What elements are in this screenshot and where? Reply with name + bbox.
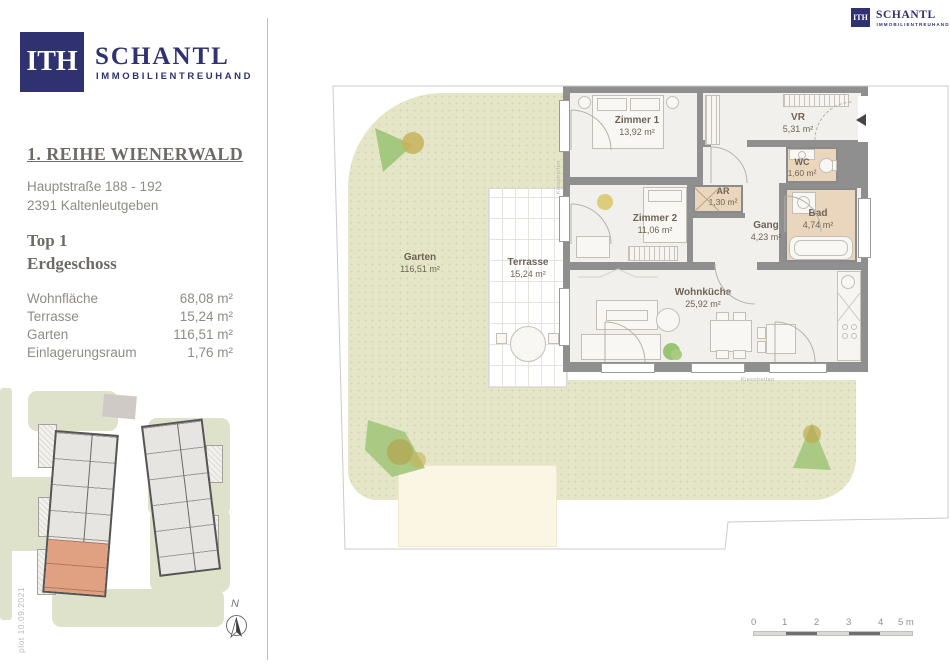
scale-segment: [849, 632, 881, 635]
sideboard-inner: [606, 310, 648, 321]
storage-building-footprint: [398, 465, 557, 547]
label-garten: Garten 116,51 m²: [400, 252, 440, 275]
armchair: [656, 308, 680, 332]
room-name: Bad: [803, 208, 834, 220]
project-title: 1. REIHE WIENERWALD: [27, 144, 243, 165]
area-value: 116,51 m²: [173, 326, 233, 344]
compass-icon: [226, 615, 247, 636]
scale-end-label: 5 m: [898, 617, 914, 628]
scale-tick: 1: [782, 617, 787, 628]
gravel-strip-note: Kiesstreifen: [741, 377, 775, 383]
room-label-zimmer2: Zimmer 2 11,06 m²: [633, 213, 677, 236]
scale-bar: 0 1 2 3 4 5 m: [751, 617, 923, 639]
area-value: 68,08 m²: [180, 290, 233, 308]
nightstand: [666, 96, 679, 109]
scale-segment: [817, 632, 849, 635]
room-name: Terrasse: [508, 257, 549, 269]
scale-bar-segments: [753, 631, 913, 636]
chair: [733, 312, 746, 321]
duct-block: [838, 147, 861, 185]
panel-divider: [267, 18, 268, 660]
chair: [733, 350, 746, 359]
ith-logo-small-icon: ITH: [851, 8, 870, 27]
stove-burner: [851, 333, 857, 339]
label-terrasse: Terrasse 15,24 m²: [508, 257, 549, 280]
room-area: 13,92 m²: [615, 127, 659, 138]
terrace-door: [769, 363, 827, 373]
terrace-chair: [496, 333, 507, 344]
area-row: Garten 116,51 m²: [27, 326, 233, 344]
terrace-door: [601, 363, 655, 373]
room-label-zimmer1: Zimmer 1 13,92 m²: [615, 115, 659, 138]
plot-date-stamp: plot 10.09.2021: [16, 553, 26, 653]
address-line-1: Hauptstraße 188 - 192: [27, 177, 162, 196]
interior-wall: [757, 262, 868, 270]
room-name: AR: [709, 186, 738, 197]
site-building-left: [42, 430, 119, 598]
stove-burner: [851, 324, 857, 330]
room-name: VR: [783, 112, 814, 124]
terrace-chair: [548, 333, 559, 344]
interior-wall: [563, 262, 715, 270]
brand-name: SCHANTL: [95, 43, 230, 71]
chair: [716, 350, 729, 359]
area-label: Wohnfläche: [27, 290, 98, 308]
toilet-tank: [832, 160, 837, 171]
room-area: 25,92 m²: [675, 299, 731, 310]
chair: [757, 327, 766, 339]
chair: [716, 312, 729, 321]
ith-logo-icon: ITH: [20, 32, 84, 92]
stove-burner: [842, 333, 848, 339]
unit-name: Top 1: [27, 229, 67, 252]
room-label-vr: VR 5,31 m²: [783, 112, 814, 135]
room-label-wc: WC 1,60 m²: [788, 157, 817, 178]
wardrobe: [705, 95, 720, 145]
room-label-wohnkueche: Wohnküche 25,92 m²: [675, 287, 731, 310]
terrace-table: [510, 326, 546, 362]
wardrobe: [783, 94, 849, 107]
area-table: Wohnfläche 68,08 m² Terrasse 15,24 m² Ga…: [27, 290, 233, 362]
scale-tick: 0: [751, 617, 756, 628]
area-value: 1,76 m²: [187, 344, 233, 362]
dining-table: [710, 320, 752, 352]
address-line-2: 2391 Kaltenleutgeben: [27, 196, 158, 215]
room-label-gang: Gang 4,23 m²: [751, 220, 782, 243]
window: [559, 100, 570, 152]
room-area: 1,30 m²: [709, 197, 738, 207]
scale-tick: 3: [846, 617, 851, 628]
exterior-wall-top: [563, 86, 868, 93]
plant: [671, 349, 682, 360]
room-area: 4,74 m²: [803, 220, 834, 231]
desk: [576, 236, 610, 258]
area-label: Einlagerungsraum: [27, 344, 137, 362]
area-value: 15,24 m²: [180, 308, 233, 326]
room-name: Zimmer 1: [615, 115, 659, 127]
room-area: 15,24 m²: [508, 269, 549, 280]
scale-tick: 2: [814, 617, 819, 628]
room-area: 5,31 m²: [783, 124, 814, 135]
scale-segment: [786, 632, 818, 635]
terrace-door: [691, 363, 745, 373]
stove-burner: [842, 324, 848, 330]
scale-segment: [880, 632, 912, 635]
nightstand: [578, 96, 591, 109]
room-name: WC: [788, 157, 817, 168]
area-row: Einlagerungsraum 1,76 m²: [27, 344, 233, 362]
plant: [597, 194, 613, 210]
scale-tick: 4: [878, 617, 883, 628]
room-name: Zimmer 2: [633, 213, 677, 225]
room-area: 11,06 m²: [633, 225, 677, 236]
interior-wall: [747, 140, 868, 147]
window-bad: [858, 198, 871, 258]
interior-wall: [697, 93, 703, 177]
entrance-opening: [858, 96, 871, 142]
room-label-ar: AR 1,30 m²: [709, 186, 738, 207]
kitchen-sink: [841, 275, 855, 289]
dining-table: [766, 324, 796, 354]
area-row: Wohnfläche 68,08 m²: [27, 290, 233, 308]
room-label-bad: Bad 4,74 m²: [803, 208, 834, 231]
site-building-wall: [177, 424, 196, 571]
bathtub-inner: [794, 240, 848, 256]
pillow: [597, 98, 627, 111]
chair: [757, 341, 766, 353]
room-area: 1,60 m²: [788, 168, 817, 178]
pillow: [630, 98, 660, 111]
brand-subtitle-small: IMMOBILIENTREUHAND: [877, 22, 950, 27]
pillow: [648, 190, 682, 202]
interior-wall: [563, 177, 703, 185]
area-row: Terrasse 15,24 m²: [27, 308, 233, 326]
area-label: Terrasse: [27, 308, 79, 326]
sofa: [581, 334, 661, 360]
compass-north-label: N: [231, 598, 239, 610]
site-highlighted-unit: [44, 539, 108, 596]
room-name: Wohnküche: [675, 287, 731, 299]
room-name: Gang: [751, 220, 782, 232]
room-area: 116,51 m²: [400, 264, 440, 275]
dresser: [628, 246, 678, 261]
interior-wall: [693, 213, 745, 218]
scale-segment: [754, 632, 786, 635]
site-grey-block: [102, 394, 137, 420]
brand-subtitle: IMMOBILIENTREUHAND: [96, 71, 253, 82]
brand-name-small: SCHANTL: [876, 9, 936, 21]
floor-name: Erdgeschoss: [27, 252, 117, 275]
room-name: Garten: [400, 252, 440, 264]
floorplan-sheet: ITH SCHANTL IMMOBILIENTREUHAND ITH SCHAN…: [0, 0, 950, 671]
gravel-strip-note-vertical: Kiesstreifen: [556, 148, 562, 194]
area-label: Garten: [27, 326, 68, 344]
window: [559, 288, 570, 346]
room-area: 4,23 m²: [751, 232, 782, 243]
window: [559, 196, 570, 242]
